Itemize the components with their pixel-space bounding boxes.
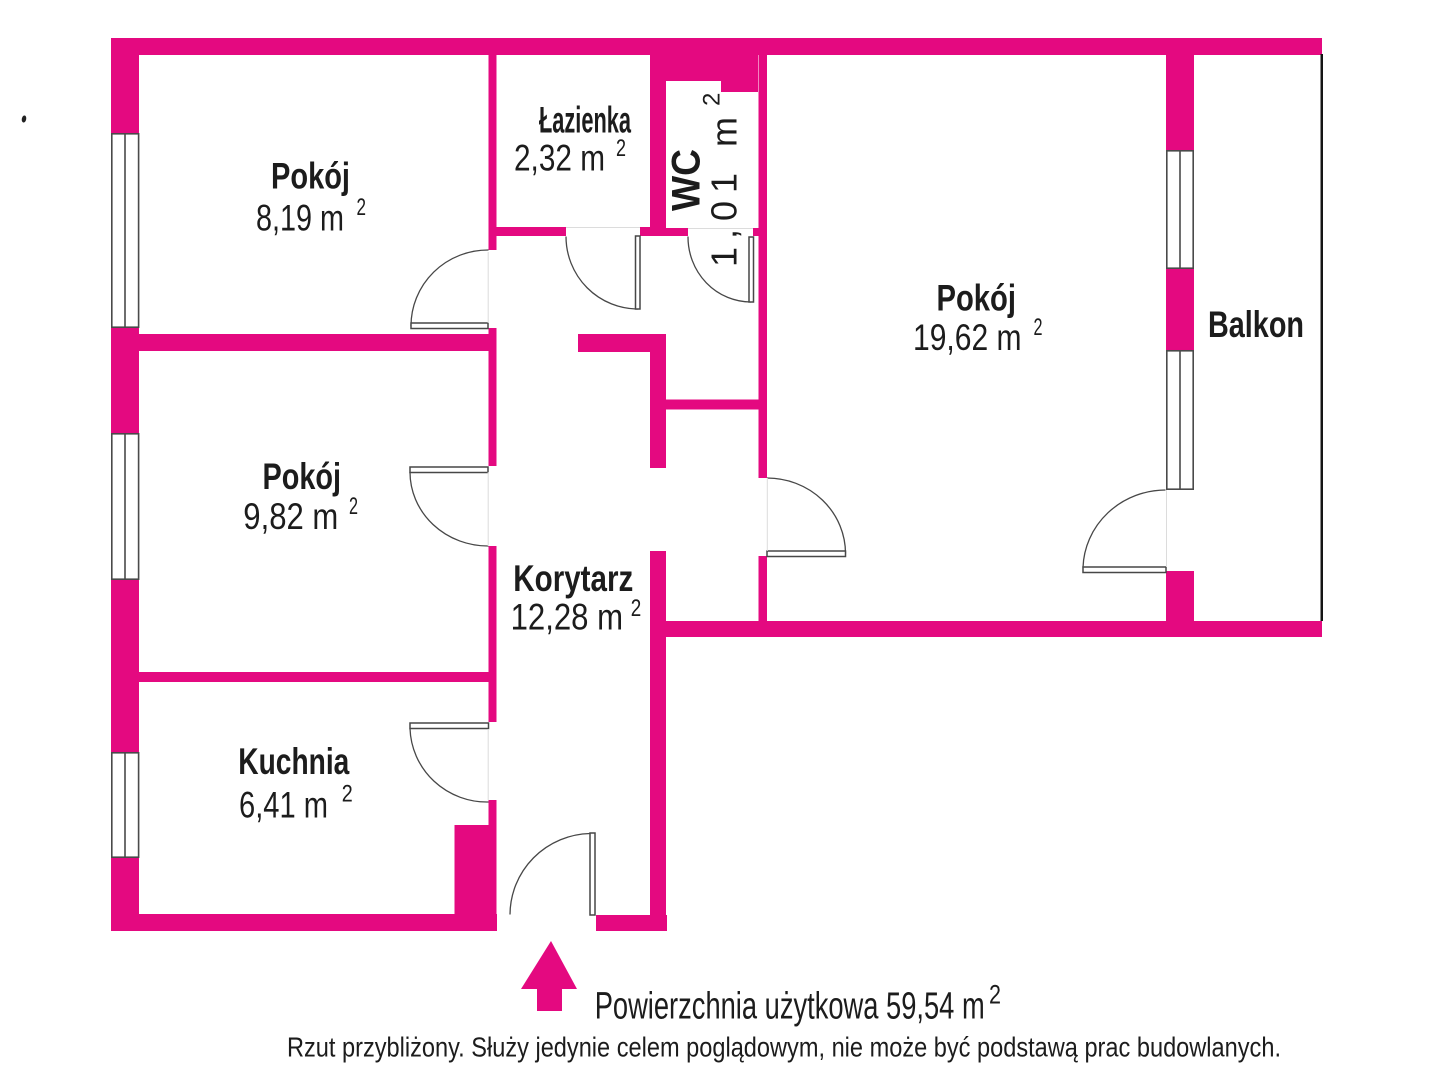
- svg-text:2: 2: [616, 135, 626, 162]
- svg-text:Pokój: Pokój: [263, 456, 342, 497]
- svg-text:WC: WC: [665, 149, 709, 211]
- svg-text:2: 2: [357, 194, 367, 221]
- svg-text:Kuchnia: Kuchnia: [238, 741, 349, 782]
- svg-text:6,41 m: 6,41 m: [239, 785, 328, 826]
- svg-text:9,82 m: 9,82 m: [243, 496, 338, 537]
- svg-text:2: 2: [989, 980, 1001, 1010]
- svg-text:12,28 m: 12,28 m: [511, 597, 623, 638]
- svg-text:2: 2: [631, 595, 642, 622]
- svg-text:2,32 m: 2,32 m: [514, 138, 605, 179]
- svg-text:2: 2: [699, 93, 726, 106]
- svg-text:Rzut przybliżony. Służy jedyni: Rzut przybliżony. Służy jedynie celem po…: [287, 1032, 1281, 1063]
- svg-text:19,62 m: 19,62 m: [913, 317, 1022, 358]
- svg-text:8,19 m: 8,19 m: [256, 198, 344, 239]
- svg-text:2: 2: [349, 493, 358, 520]
- svg-text:Pokój: Pokój: [271, 156, 350, 197]
- svg-text:2: 2: [342, 781, 353, 808]
- svg-text:Korytarz: Korytarz: [513, 558, 633, 599]
- svg-text:Pokój: Pokój: [937, 278, 1017, 319]
- svg-text:2: 2: [1034, 314, 1043, 341]
- svg-text:Balkon: Balkon: [1208, 304, 1304, 345]
- svg-text:Powierzchnia użytkowa 59,54 m: Powierzchnia użytkowa 59,54 m: [595, 986, 985, 1028]
